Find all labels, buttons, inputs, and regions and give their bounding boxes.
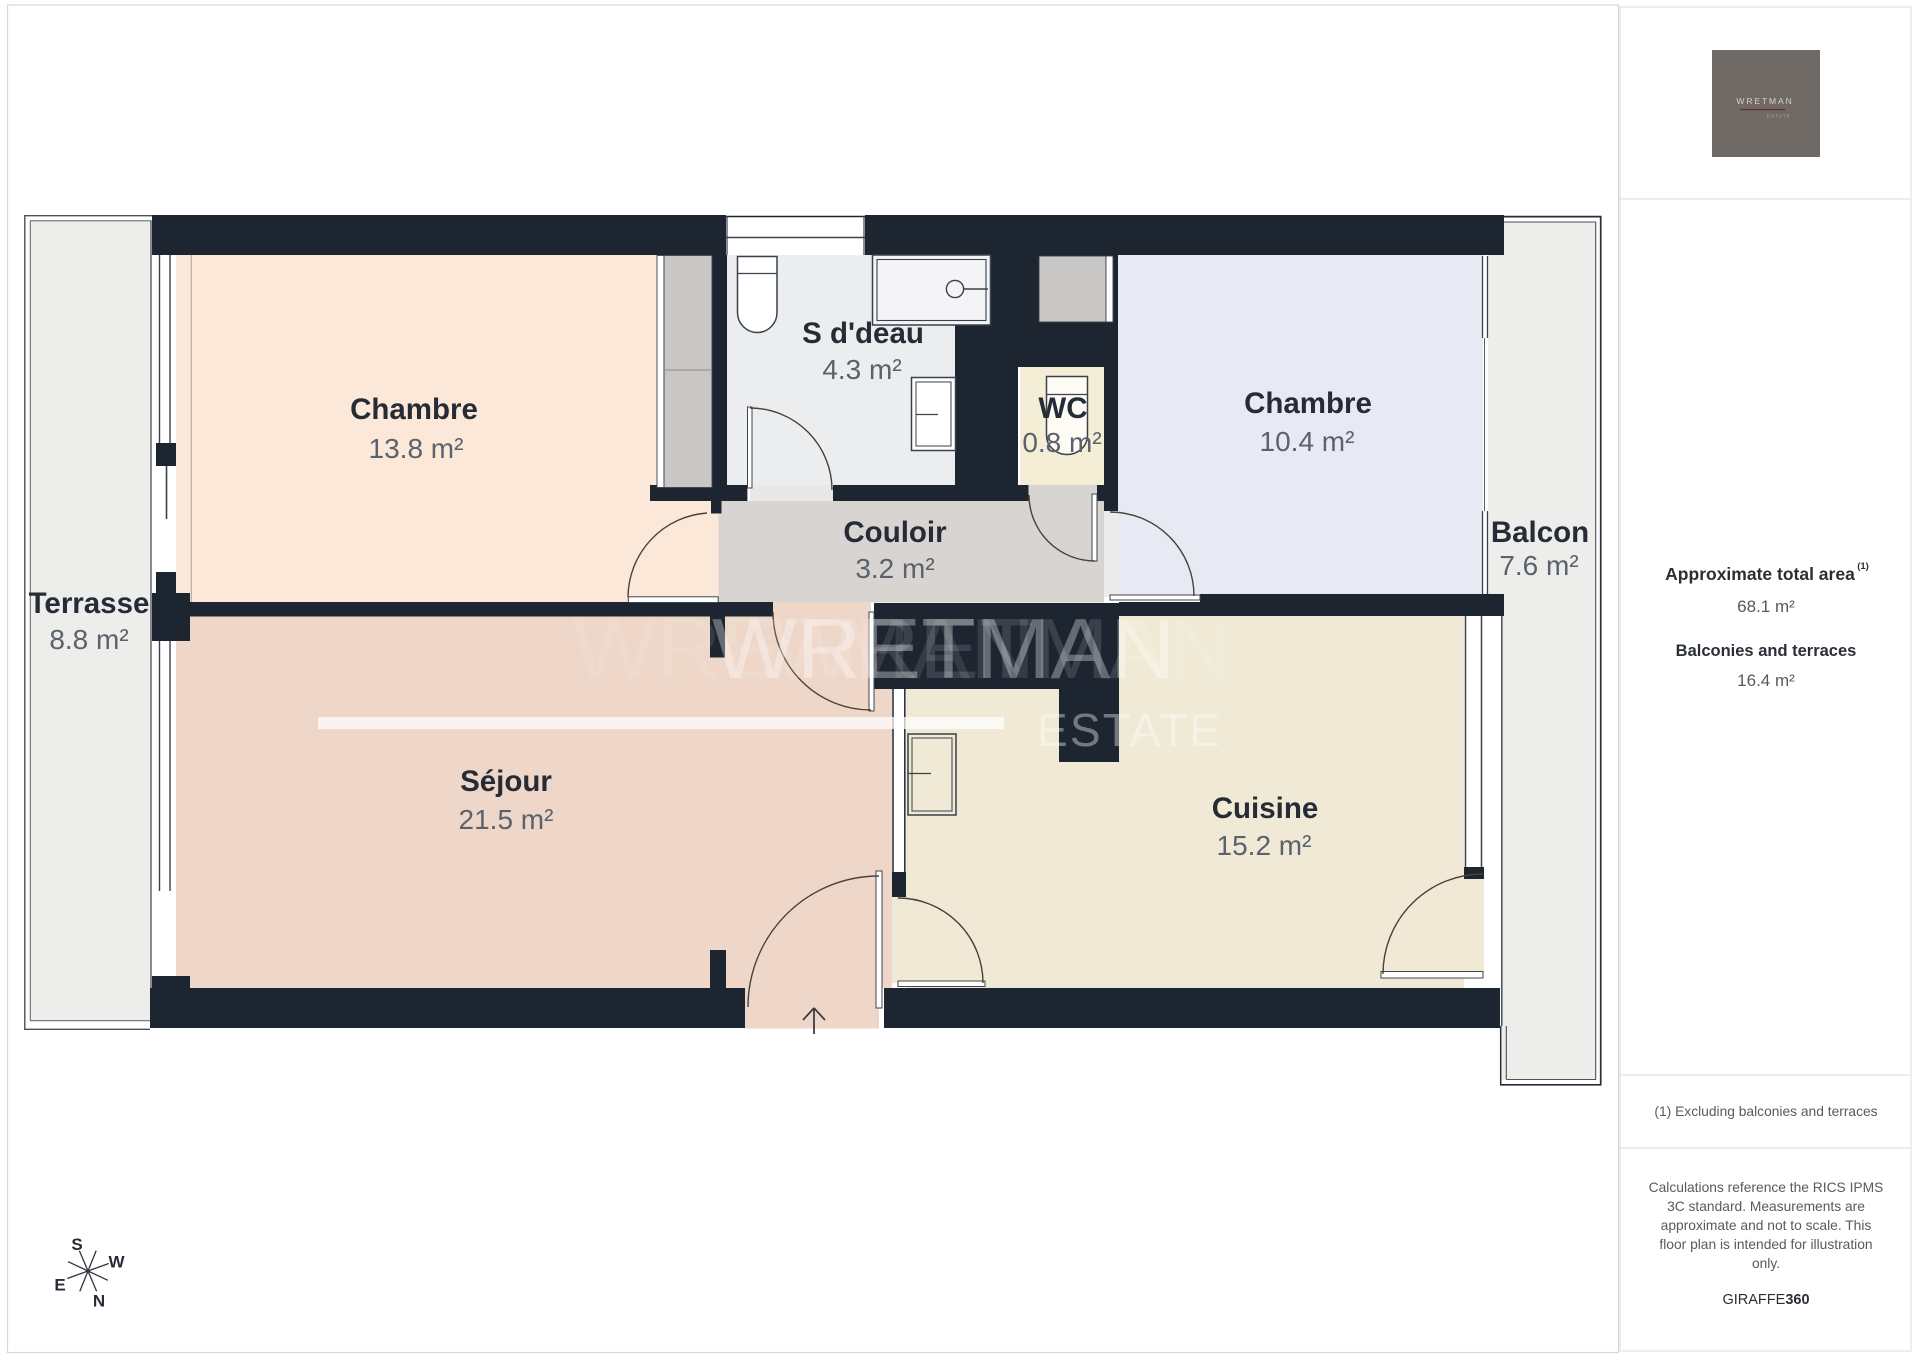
svg-text:Chambre: Chambre: [350, 393, 478, 426]
svg-text:3C standard. Measurements are: 3C standard. Measurements are: [1667, 1199, 1865, 1214]
svg-text:16.4 m²: 16.4 m²: [1737, 671, 1795, 690]
svg-text:7.6 m²: 7.6 m²: [1499, 550, 1578, 581]
svg-text:Cuisine: Cuisine: [1212, 792, 1319, 825]
svg-text:WRETMAN: WRETMAN: [572, 602, 1035, 697]
svg-text:10.4 m²: 10.4 m²: [1260, 426, 1355, 457]
svg-text:approximate and not to scale.: approximate and not to scale. This: [1661, 1218, 1872, 1233]
svg-text:(1) Excluding balconies and te: (1) Excluding balconies and terraces: [1654, 1104, 1877, 1119]
svg-text:21.5 m²: 21.5 m²: [459, 804, 554, 835]
svg-text:4.3 m²: 4.3 m²: [822, 354, 901, 385]
svg-text:(1): (1): [1857, 561, 1869, 572]
svg-text:8.8 m²: 8.8 m²: [49, 624, 128, 655]
svg-text:GIRAFFE360: GIRAFFE360: [1722, 1292, 1809, 1308]
svg-text:floor plan is intended for ill: floor plan is intended for illustration: [1659, 1237, 1872, 1252]
svg-text:ESTATE: ESTATE: [1037, 704, 1222, 756]
svg-text:15.2 m²: 15.2 m²: [1217, 830, 1312, 861]
svg-text:N: N: [93, 1292, 105, 1311]
svg-text:Approximate total area: Approximate total area: [1665, 564, 1855, 584]
svg-text:68.1 m²: 68.1 m²: [1737, 597, 1795, 616]
svg-text:only.: only.: [1752, 1256, 1780, 1271]
svg-text:S d'deau: S d'deau: [802, 317, 924, 350]
svg-text:S: S: [71, 1235, 82, 1254]
svg-text:W: W: [108, 1253, 125, 1272]
svg-text:0.8 m²: 0.8 m²: [1022, 427, 1101, 458]
svg-text:Séjour: Séjour: [460, 765, 552, 798]
svg-text:E: E: [54, 1275, 65, 1294]
svg-text:Calculations reference the RIC: Calculations reference the RICS IPMS: [1649, 1180, 1884, 1195]
svg-text:3.2 m²: 3.2 m²: [855, 553, 934, 584]
svg-text:WC: WC: [1038, 392, 1087, 425]
svg-text:Balconies and terraces: Balconies and terraces: [1676, 642, 1857, 660]
svg-text:Couloir: Couloir: [843, 516, 947, 549]
svg-text:WRETMAN: WRETMAN: [1736, 96, 1793, 106]
svg-text:13.8 m²: 13.8 m²: [369, 433, 464, 464]
svg-text:Terrasse: Terrasse: [29, 587, 150, 620]
svg-text:Chambre: Chambre: [1244, 387, 1372, 420]
svg-text:Balcon: Balcon: [1491, 516, 1589, 549]
svg-text:ESTATE: ESTATE: [1767, 114, 1791, 119]
